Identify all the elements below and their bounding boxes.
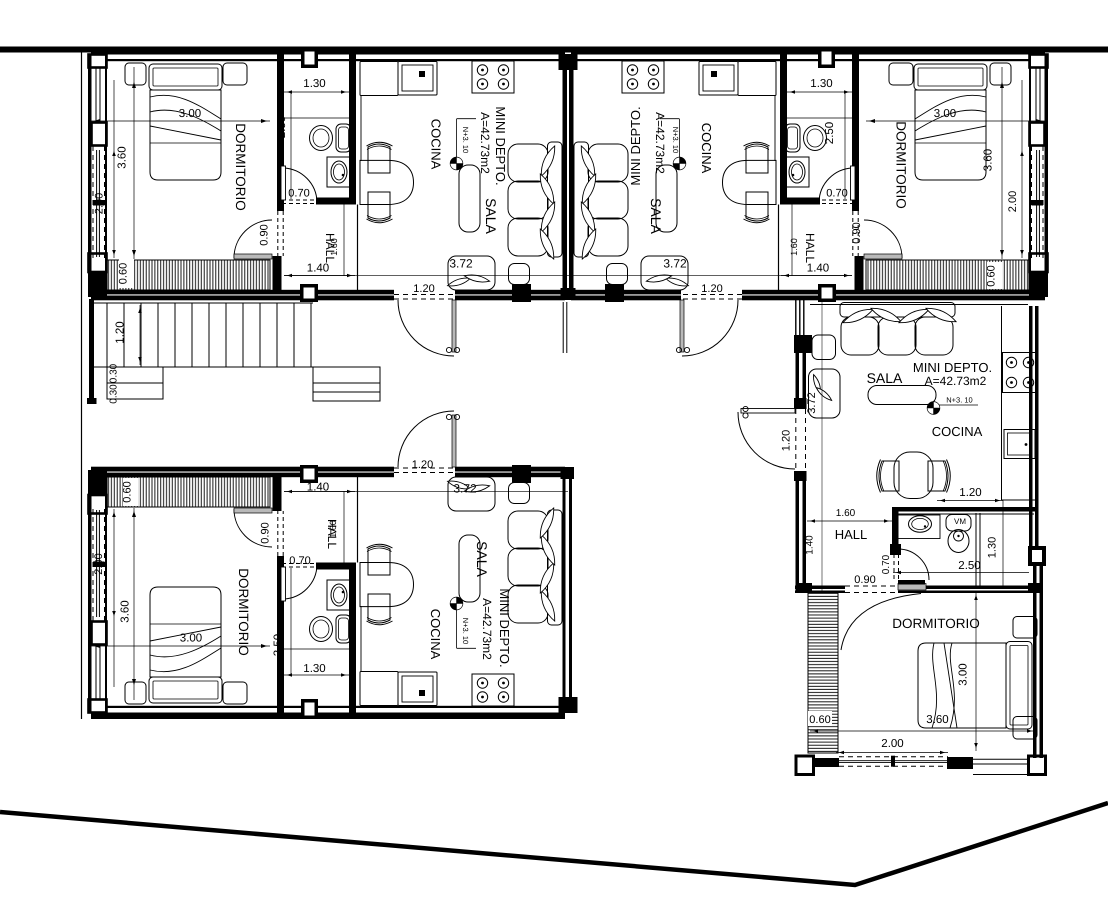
svg-text:MINI DEPTO.: MINI DEPTO. xyxy=(497,588,512,667)
svg-text:1.60: 1.60 xyxy=(789,238,799,256)
svg-text:N+3. 10: N+3. 10 xyxy=(671,127,680,153)
svg-text:2.00: 2.00 xyxy=(881,738,903,750)
svg-text:3.72: 3.72 xyxy=(453,482,477,496)
svg-text:3.60: 3.60 xyxy=(983,149,995,171)
svg-text:0.30: 0.30 xyxy=(109,384,120,404)
svg-text:1.30: 1.30 xyxy=(987,537,999,558)
svg-text:0.90: 0.90 xyxy=(260,522,272,543)
svg-text:DORMITORIO: DORMITORIO xyxy=(892,616,980,631)
svg-text:1.40: 1.40 xyxy=(807,263,829,275)
svg-text:N+3. 10: N+3. 10 xyxy=(461,127,470,153)
svg-text:1.40: 1.40 xyxy=(307,482,329,494)
svg-text:3.60: 3.60 xyxy=(117,146,129,168)
svg-text:1.20: 1.20 xyxy=(115,321,127,343)
svg-text:3.00: 3.00 xyxy=(180,633,202,645)
svg-text:2.00: 2.00 xyxy=(1007,191,1019,212)
svg-text:MINI DEPTO.: MINI DEPTO. xyxy=(628,106,643,185)
svg-text:0.90: 0.90 xyxy=(854,574,875,586)
svg-text:2.00: 2.00 xyxy=(93,553,105,574)
svg-text:SALA: SALA xyxy=(483,198,499,234)
svg-text:DORMITORIO: DORMITORIO xyxy=(236,568,251,656)
svg-text:N+3. 10: N+3. 10 xyxy=(946,396,972,405)
svg-text:DORMITORIO: DORMITORIO xyxy=(894,121,909,209)
svg-text:1.30: 1.30 xyxy=(303,78,325,90)
svg-text:0.90: 0.90 xyxy=(259,224,271,245)
svg-text:0.60: 0.60 xyxy=(118,263,130,284)
svg-text:1.20: 1.20 xyxy=(701,283,722,295)
svg-text:1.20: 1.20 xyxy=(413,283,434,295)
svg-text:A=42.73m2: A=42.73m2 xyxy=(478,112,492,174)
svg-text:3.60: 3.60 xyxy=(926,714,948,726)
svg-text:3.00: 3.00 xyxy=(179,108,201,120)
svg-text:0.70: 0.70 xyxy=(288,188,309,200)
svg-text:0.90: 0.90 xyxy=(851,222,863,243)
svg-text:0.70: 0.70 xyxy=(289,555,310,567)
svg-text:0.70: 0.70 xyxy=(826,188,847,200)
svg-text:3.72: 3.72 xyxy=(806,392,818,413)
svg-text:0.60: 0.60 xyxy=(986,265,998,286)
svg-text:A=42.73m2: A=42.73m2 xyxy=(480,598,494,660)
svg-text:2.50: 2.50 xyxy=(276,116,288,138)
svg-text:COCINA: COCINA xyxy=(428,609,443,660)
svg-text:1.60: 1.60 xyxy=(836,508,856,519)
svg-text:1.30: 1.30 xyxy=(810,78,832,90)
svg-text:2.50: 2.50 xyxy=(824,122,836,144)
svg-text:1.60: 1.60 xyxy=(328,520,338,538)
svg-text:DORMITORIO: DORMITORIO xyxy=(233,123,248,211)
svg-text:1.60: 1.60 xyxy=(329,238,339,256)
svg-text:VM: VM xyxy=(954,517,966,526)
svg-text:0.70: 0.70 xyxy=(881,554,892,574)
svg-text:A=42.73m2: A=42.73m2 xyxy=(653,112,667,174)
svg-text:COCINA: COCINA xyxy=(932,424,983,439)
svg-text:2.50: 2.50 xyxy=(958,560,980,572)
svg-text:1.40: 1.40 xyxy=(805,535,816,555)
svg-text:1.20: 1.20 xyxy=(781,430,793,451)
svg-text:3.00: 3.00 xyxy=(958,663,970,685)
svg-text:2.00: 2.00 xyxy=(94,193,106,214)
svg-text:3.60: 3.60 xyxy=(120,600,132,622)
svg-text:HALL: HALL xyxy=(835,527,868,542)
svg-text:1.30: 1.30 xyxy=(303,663,325,675)
svg-text:SALA: SALA xyxy=(648,198,664,234)
svg-text:0.60: 0.60 xyxy=(809,714,830,726)
svg-text:3.00: 3.00 xyxy=(934,108,956,120)
svg-text:N+3. 10: N+3. 10 xyxy=(461,618,470,644)
svg-text:SALA: SALA xyxy=(867,370,903,386)
svg-text:MINI DEPTO.: MINI DEPTO. xyxy=(913,360,992,375)
svg-text:2.50: 2.50 xyxy=(273,634,285,656)
svg-text:HALL: HALL xyxy=(803,233,817,263)
svg-text:A=42.73m2: A=42.73m2 xyxy=(925,374,987,388)
svg-text:COCINA: COCINA xyxy=(429,119,444,170)
svg-text:1.40: 1.40 xyxy=(307,263,329,275)
svg-text:0.60: 0.60 xyxy=(122,481,134,502)
svg-text:1.20: 1.20 xyxy=(412,459,433,471)
svg-text:SALA: SALA xyxy=(474,541,490,577)
svg-text:MINI DEPTO.: MINI DEPTO. xyxy=(493,106,508,185)
svg-text:COCINA: COCINA xyxy=(699,123,714,174)
svg-text:3.72: 3.72 xyxy=(663,257,687,271)
svg-text:1.20: 1.20 xyxy=(959,487,981,499)
svg-text:0.30: 0.30 xyxy=(109,363,120,383)
svg-text:3.72: 3.72 xyxy=(449,257,473,271)
